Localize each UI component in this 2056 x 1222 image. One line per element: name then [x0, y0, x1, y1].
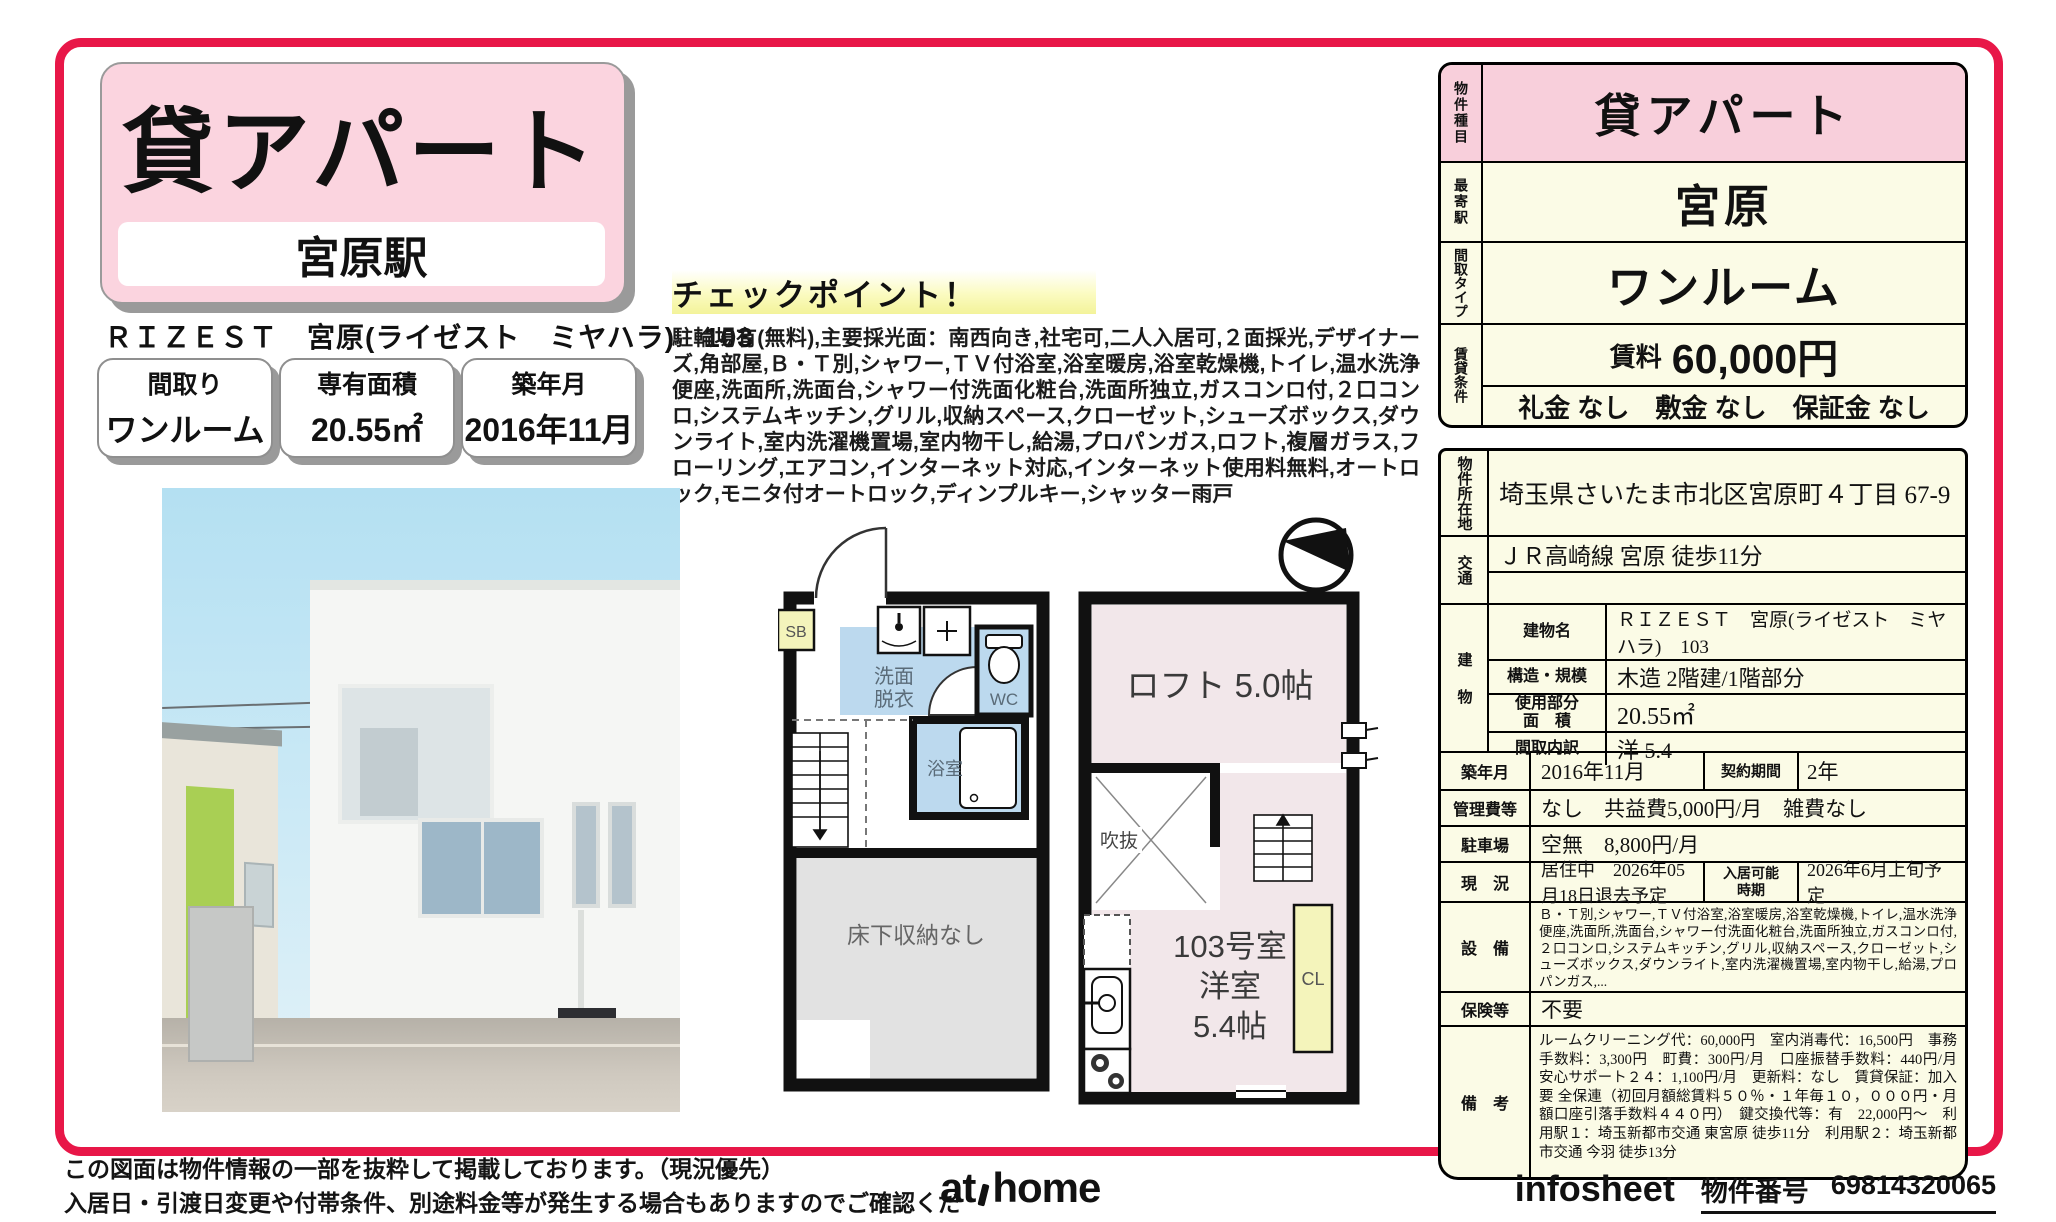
sliding-window	[418, 818, 544, 918]
rent-value: 60,000円	[1672, 325, 1838, 385]
infosheet-page: 貸アパート 宮原駅 ＲＩＺＥＳＴ 宮原(ライゼスト ミヤハラ) 103 間取り …	[0, 0, 2056, 1222]
station-name: 宮原駅	[118, 222, 605, 286]
floorplan-svg: SB 洗面 脱衣	[778, 515, 1408, 1107]
kitchen-sink-icon	[1084, 969, 1130, 1049]
usage-area-label-1: 使用部分	[1515, 695, 1579, 713]
building-group-label: 建物	[1441, 605, 1489, 751]
underfloor-label: 床下収納なし	[847, 922, 985, 948]
chip-layout-value: ワンルーム	[105, 405, 264, 451]
bath-label: 浴室	[927, 759, 963, 779]
movein-value: 2026年6月上旬予定	[1799, 863, 1965, 901]
nearest-station-label: 最寄駅	[1441, 163, 1483, 241]
room-label-2: 洋室	[1199, 969, 1261, 1004]
layout-type-value: ワンルーム	[1483, 243, 1965, 323]
structure-value: 木造 2階建/1階部分	[1607, 661, 1965, 693]
property-type-label: 物件種目	[1441, 65, 1483, 161]
usage-area-value: 20.55㎡	[1607, 695, 1965, 731]
movein-label-1: 入居可能	[1723, 865, 1779, 882]
layout-type-label: 間取タイプ	[1441, 243, 1483, 323]
insurance-value: 不要	[1531, 993, 1965, 1025]
location-value: 埼玉県さいたま市北区宮原町４丁目 67-9	[1489, 451, 1965, 535]
chip-layout-label: 間取り	[147, 365, 222, 401]
parking-label: 駐車場	[1441, 827, 1531, 861]
row-access: 交通 ＪＲ高崎線 宮原 徒歩11分	[1441, 535, 1965, 603]
structure-label: 構造・規模	[1489, 661, 1607, 693]
detail-table: 物件所在地 埼玉県さいたま市北区宮原町４丁目 67-9 交通 ＪＲ高崎線 宮原 …	[1438, 448, 1968, 1180]
infosheet-label: infosheet	[1515, 1168, 1675, 1210]
row-nearest-station: 最寄駅 宮原	[1441, 161, 1965, 241]
row-management-fees: 管理費等 なし 共益費5,000円/月 雑費なし	[1441, 789, 1965, 825]
row-built-date: 築年月 2016年11月 契約期間 2年	[1441, 751, 1965, 789]
washroom-label-1: 洗面	[874, 665, 914, 688]
property-type-value: 貸アパート	[1483, 65, 1965, 161]
washroom-label-2: 脱衣	[874, 688, 914, 711]
chip-area-label: 専有面積	[317, 365, 417, 401]
property-type-title: 貸アパート	[100, 70, 622, 218]
row-current-status: 現 況 居住中 2026年05月18日退去予定 入居可能 時期 2026年6月上…	[1441, 861, 1965, 901]
room-label-1: 103号室	[1173, 929, 1287, 964]
void-label: 吹抜	[1100, 830, 1138, 852]
fridge-space	[1084, 915, 1130, 969]
checkpoint-title: チェックポイント！	[672, 270, 1096, 314]
floorplan-right-unit: ロフト 5.0帖 吹抜	[1084, 520, 1378, 1098]
sb-label: SB	[785, 624, 806, 641]
access-label: 交通	[1441, 537, 1489, 603]
row-building-group: 建物 建物名 ＲＩＺＥＳＴ 宮原(ライゼスト ミヤハラ) 103 構造・規模 木…	[1441, 603, 1965, 751]
void-area: 吹抜	[1092, 773, 1210, 907]
utility-cabinet	[188, 906, 254, 1062]
athome-logo-mark-icon	[978, 1183, 990, 1206]
usage-area-label-2: 面 積	[1523, 713, 1571, 731]
closet: CL	[1294, 905, 1332, 1052]
row-remarks: 備 考 ルームクリーニング代：60,000円 室内消毒代：16,500円 事務手…	[1441, 1025, 1965, 1177]
access-value-2	[1489, 573, 1965, 603]
entrance-opening	[814, 589, 886, 605]
equipment-label: 設 備	[1441, 903, 1531, 991]
row-usage-area: 使用部分 面 積 20.55㎡	[1489, 693, 1965, 731]
loft-label: ロフト 5.0帖	[1126, 667, 1313, 704]
balcony-void	[338, 684, 494, 824]
rent-label: 賃料	[1610, 337, 1662, 374]
toilet-icon	[986, 635, 1022, 683]
current-status-label: 現 況	[1441, 863, 1531, 901]
outdoor-stair	[360, 728, 418, 816]
parapet	[310, 580, 680, 590]
built-date-value: 2016年11月	[1531, 753, 1703, 789]
equipment-value: Ｂ・Ｔ別,シャワー,ＴＶ付浴室,浴室暖房,浴室乾燥機,トイレ,温水洗浄便座,洗面…	[1531, 903, 1965, 991]
floorplan-left-unit: SB 洗面 脱衣	[778, 528, 1043, 1085]
shoebox: SB	[778, 610, 814, 650]
current-status-value: 居住中 2026年05月18日退去予定	[1531, 863, 1703, 901]
washing-machine-icon	[878, 607, 920, 653]
row-rental-terms: 賃貸条件 賃料 60,000円 礼金 なし 敷金 なし 保証金 なし	[1441, 323, 1965, 425]
compass-icon	[1281, 520, 1351, 590]
property-number: 物件番号 69814320065	[1701, 1170, 1996, 1214]
stairs-left-unit	[792, 733, 848, 847]
window-icon	[1236, 1085, 1286, 1098]
kitchen	[1084, 915, 1130, 1093]
athome-logo: at home	[940, 1164, 1100, 1212]
wc-label: WC	[990, 690, 1018, 709]
row-property-type: 物件種目 貸アパート	[1441, 65, 1965, 161]
management-fees-label: 管理費等	[1441, 791, 1531, 825]
contract-period-label: 契約期間	[1703, 753, 1799, 789]
stove-icon	[1084, 1049, 1130, 1093]
building-name-value: ＲＩＺＥＳＴ 宮原(ライゼスト ミヤハラ) 103	[1607, 605, 1965, 659]
building-name-line: ＲＩＺＥＳＴ 宮原(ライゼスト ミヤハラ) 103	[104, 316, 634, 356]
infosheet-footer: infosheet 物件番号 69814320065	[1430, 1168, 1996, 1214]
row-structure: 構造・規模 木造 2階建/1階部分	[1489, 659, 1965, 693]
footer-note-line1: この図面は物件情報の一部を抜粋して掲載しております。（現況優先）	[64, 1150, 964, 1184]
property-number-label: 物件番号	[1701, 1170, 1809, 1209]
chip-built-value: 2016年11月	[464, 405, 633, 451]
property-number-value: 69814320065	[1831, 1170, 1996, 1209]
bathtub-icon	[960, 728, 1016, 808]
chip-area: 専有面積 20.55㎡	[279, 358, 455, 458]
athome-logo-at: at	[940, 1164, 975, 1212]
contract-period-value: 2年	[1799, 753, 1965, 789]
built-date-label: 築年月	[1441, 753, 1531, 789]
insurance-label: 保険等	[1441, 993, 1531, 1025]
nearest-station-value: 宮原	[1483, 163, 1965, 241]
checkpoint-text: 駐輪場有(無料),主要採光面：南西向き,社宅可,二人入居可,２面採光,デザイナー…	[672, 326, 1420, 508]
closet-label: CL	[1301, 969, 1324, 989]
access-value: ＪＲ高崎線 宮原 徒歩11分	[1489, 537, 1965, 573]
building-photo	[162, 488, 680, 1112]
entrance-door-arc	[816, 528, 886, 598]
summary-table: 物件種目 貸アパート 最寄駅 宮原 間取タイプ ワンルーム 賃貸条件 賃料 60…	[1438, 62, 1968, 428]
management-fees-value: なし 共益費5,000円/月 雑費なし	[1531, 791, 1965, 825]
roof-line	[162, 721, 282, 746]
row-equipment: 設 備 Ｂ・Ｔ別,シャワー,ＴＶ付浴室,浴室暖房,浴室乾燥機,トイレ,温水洗浄便…	[1441, 901, 1965, 991]
bathroom: 浴室	[913, 720, 1025, 816]
slim-window	[608, 802, 636, 908]
athome-logo-home: home	[992, 1164, 1100, 1212]
building-name-label: 建物名	[1489, 605, 1607, 659]
row-insurance: 保険等 不要	[1441, 991, 1965, 1025]
stairs-right-unit	[1254, 815, 1312, 881]
slim-window	[572, 802, 600, 908]
chip-built-label: 築年月	[511, 365, 586, 401]
chip-built: 築年月 2016年11月	[461, 358, 637, 458]
movein-label-2: 時期	[1737, 882, 1765, 899]
remarks-label: 備 考	[1441, 1027, 1531, 1177]
location-label: 物件所在地	[1441, 451, 1489, 535]
deposits-value: 礼金 なし 敷金 なし 保証金 なし	[1483, 387, 1965, 425]
wc-room: WC	[977, 627, 1031, 715]
footer-note-line2: 入居日・引渡日変更や付帯条件、別途料金等が発生する場合もありますのでご確認くださ…	[64, 1184, 964, 1222]
chip-layout: 間取り ワンルーム	[97, 358, 273, 458]
vanity-icon	[924, 607, 970, 655]
row-layout-type: 間取タイプ ワンルーム	[1441, 241, 1965, 323]
room-label-3: 5.4帖	[1193, 1009, 1267, 1044]
rental-terms-label: 賃貸条件	[1441, 325, 1483, 425]
remarks-value: ルームクリーニング代：60,000円 室内消毒代：16,500円 事務手数料：3…	[1531, 1027, 1965, 1177]
row-building-name: 建物名 ＲＩＺＥＳＴ 宮原(ライゼスト ミヤハラ) 103	[1489, 605, 1965, 659]
chip-area-value: 20.55㎡	[311, 405, 423, 451]
row-location: 物件所在地 埼玉県さいたま市北区宮原町４丁目 67-9	[1441, 451, 1965, 535]
